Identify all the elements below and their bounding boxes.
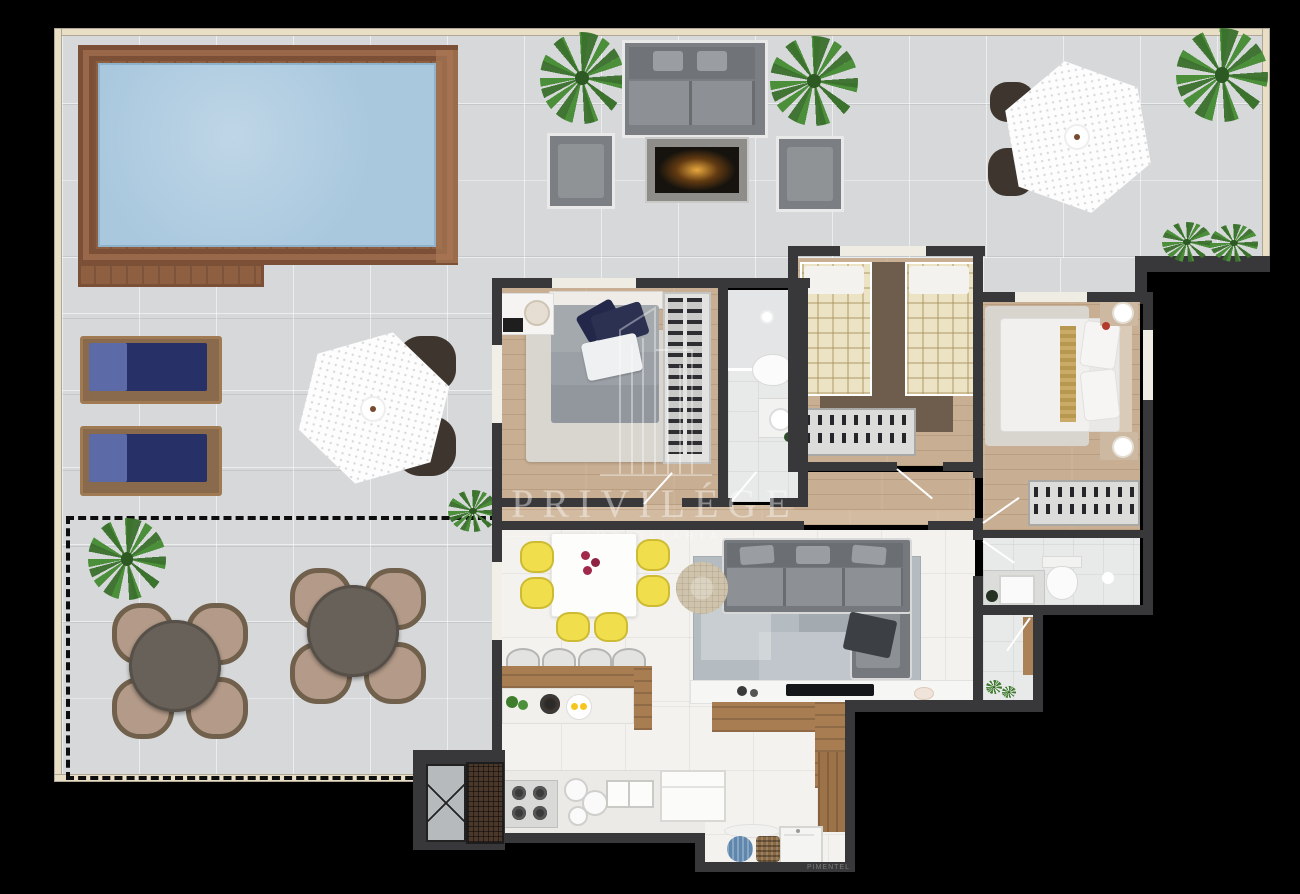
patio-round-table: [307, 585, 399, 677]
wall: [845, 700, 1043, 712]
floor-plan-canvas: PRIVILÉGE IMOBILIÁRIA PIMENTEL: [0, 0, 1300, 894]
sofa: [722, 538, 912, 614]
bedroom3-shoe-rack: [1028, 480, 1140, 526]
washer-lid-line: [784, 834, 814, 836]
wall: [492, 833, 705, 843]
washer-knob: [796, 829, 800, 833]
wardrobe-rail: [687, 298, 702, 454]
master-desk-laptop: [503, 318, 523, 332]
wall: [983, 530, 1143, 538]
burner: [533, 806, 547, 820]
toilet: [1046, 566, 1078, 600]
sofa-pillow: [851, 545, 886, 566]
shoe-row: [806, 433, 910, 443]
breakfast-bar: [502, 666, 650, 688]
dining-chair: [520, 541, 554, 573]
fridge-door-line: [662, 786, 724, 788]
egg-yolk: [571, 703, 578, 710]
window-sill: [552, 278, 636, 288]
dining-chair: [556, 612, 590, 642]
food-broccoli: [518, 700, 528, 710]
wall: [492, 521, 804, 530]
laundry-cabinet: [818, 752, 846, 832]
bedroom3-throw: [1060, 326, 1076, 422]
wall: [845, 712, 855, 872]
fire-pit-flames: [655, 147, 739, 193]
table-flowers: [583, 566, 592, 575]
wall: [770, 498, 808, 507]
parasol-pole: [1066, 126, 1088, 148]
bedroom2-shoe-rack: [800, 408, 916, 456]
terrace-edge-wall-right: [1135, 256, 1270, 272]
dining-chair: [636, 539, 670, 571]
burner: [533, 786, 547, 800]
parasol-pole: [362, 398, 384, 420]
wall: [718, 498, 732, 507]
master-desk-stool: [524, 300, 550, 326]
master-wardrobe: [663, 292, 711, 464]
bedroom3-pillow: [1079, 320, 1121, 371]
bedroom3-headboard: [1118, 314, 1132, 434]
pantry-plant: [986, 680, 1002, 694]
sofa-pillow: [653, 51, 683, 71]
sofa-seat: [629, 81, 755, 125]
outer-wall-left: [54, 28, 62, 782]
sofa-pillow: [796, 546, 830, 564]
bathroom2-plant-pot: [986, 590, 998, 602]
stair-shaft: [466, 762, 504, 844]
vanity-sink: [999, 575, 1035, 605]
elevator-shaft: [426, 764, 466, 842]
window-sill: [840, 246, 926, 256]
pool-water: [98, 63, 436, 247]
sofa-pillow: [697, 51, 727, 71]
twin-bed: [905, 262, 977, 396]
wall: [718, 288, 728, 502]
wall: [973, 605, 1153, 615]
lounger-pillow: [89, 343, 127, 391]
kitchen-sink-bowl: [568, 806, 588, 826]
outer-wall-top: [54, 28, 1270, 36]
basin-divider: [628, 782, 630, 806]
terrace-plant: [448, 490, 498, 532]
terrace-plant: [770, 36, 858, 126]
nightstand-lamp: [1112, 436, 1134, 458]
nightstand-lamp: [1112, 302, 1134, 324]
sofa-pillow: [739, 545, 774, 565]
shoe-row: [806, 415, 910, 425]
terrace-plant: [1176, 28, 1268, 122]
sofa-back-cushions: [629, 47, 755, 79]
terrace-plant: [1162, 222, 1212, 262]
breakfast-bar: [634, 666, 652, 730]
outdoor-sofa: [622, 40, 768, 138]
wall: [1033, 615, 1043, 712]
window-sill: [1143, 330, 1153, 400]
snack-plate: [914, 687, 934, 700]
bedroom3-pillow: [1079, 368, 1120, 421]
pool-deck-strip: [78, 263, 264, 287]
stove: [504, 780, 558, 828]
burner: [512, 806, 526, 820]
laundry-basket-wicker: [756, 836, 780, 862]
laundry-basket-blue: [727, 836, 753, 862]
plate-eggs: [566, 694, 592, 720]
terrace-plant: [540, 32, 624, 124]
fire-pit-table: [645, 137, 749, 203]
dining-table: [551, 533, 637, 617]
terrace-plant: [1210, 224, 1258, 262]
sun-lounger: [80, 426, 222, 496]
credit-text: PIMENTEL: [765, 864, 850, 871]
pool-deck-step: [436, 50, 458, 263]
dining-chair: [636, 575, 670, 607]
shower-head: [762, 312, 772, 322]
frying-pan: [540, 694, 560, 714]
armchair-cushion: [787, 147, 833, 201]
burner: [512, 786, 526, 800]
pouf: [676, 562, 728, 614]
toilet: [752, 354, 792, 386]
wardrobe-rail: [668, 298, 683, 454]
table-flowers: [581, 551, 590, 560]
twin-bed-pillow: [909, 266, 969, 294]
hallway-floor: [793, 472, 975, 510]
wall: [973, 615, 983, 712]
outdoor-armchair: [547, 133, 615, 209]
nightstand-flowers: [1102, 322, 1110, 330]
patio-round-table: [129, 620, 221, 712]
sun-lounger: [80, 336, 222, 404]
lounger-pillow: [89, 434, 127, 482]
shoe-row: [1034, 487, 1134, 497]
pantry-plant: [1002, 686, 1016, 698]
shower-head: [1102, 572, 1114, 584]
dining-chair: [594, 612, 628, 642]
terrace-plant: [88, 518, 166, 600]
wall: [788, 462, 897, 471]
tv: [786, 684, 874, 696]
outdoor-armchair: [776, 136, 844, 212]
wall: [492, 498, 644, 507]
dining-chair: [520, 577, 554, 609]
window-sill: [1015, 292, 1087, 302]
egg-yolk: [580, 703, 587, 710]
double-basin: [606, 780, 654, 808]
wall: [973, 302, 983, 478]
sofa-seat: [727, 568, 903, 606]
food-broccoli: [506, 696, 518, 708]
twin-bed-pillow: [804, 266, 864, 294]
wall: [928, 521, 975, 530]
terrace-door-opening: [492, 345, 502, 423]
wall: [682, 498, 718, 507]
terrace-door-opening: [492, 562, 502, 640]
table-flowers: [591, 558, 600, 567]
twin-bed: [800, 262, 872, 396]
fridge: [660, 770, 726, 822]
coffee-set: [737, 686, 747, 696]
shoe-row: [1034, 504, 1134, 514]
coffee-set: [750, 689, 758, 697]
wall: [788, 246, 798, 472]
armchair-cushion: [558, 144, 604, 198]
washing-machine: [779, 826, 823, 866]
wall: [492, 278, 810, 288]
